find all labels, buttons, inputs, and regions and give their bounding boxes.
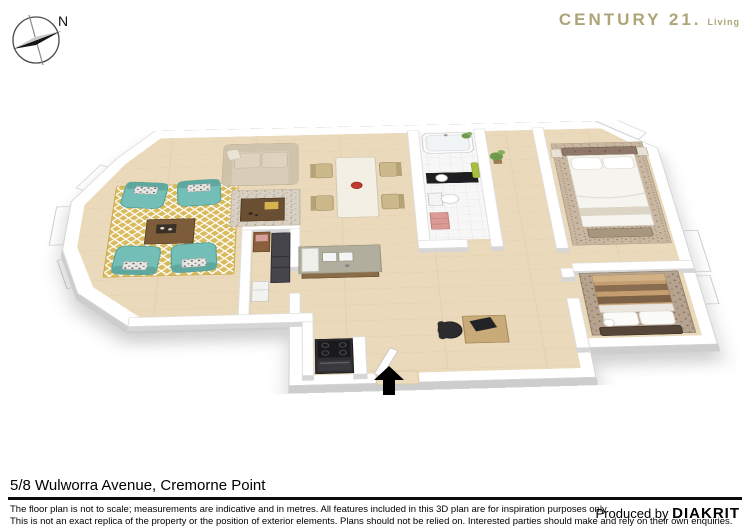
bedroom2-rug xyxy=(579,271,695,335)
interior-walls xyxy=(121,125,723,381)
teal-armchair xyxy=(110,246,161,275)
floor-plan xyxy=(0,119,750,402)
laptop xyxy=(469,317,498,332)
outer-walls xyxy=(36,120,726,393)
window-bays xyxy=(34,119,721,322)
bedroom2-floor xyxy=(574,269,702,339)
teal-armchair xyxy=(177,179,221,207)
striped-duvet xyxy=(592,274,673,307)
office-chair xyxy=(437,321,463,338)
bathroom-floor xyxy=(419,131,490,240)
round-cushion xyxy=(603,319,615,327)
master-bedroom-contents xyxy=(549,142,674,246)
dining-set xyxy=(310,156,405,218)
pillow xyxy=(570,157,603,169)
bed-end-bench xyxy=(588,228,654,238)
floor-plan-stage xyxy=(28,52,718,452)
nightstand xyxy=(636,147,649,155)
pillow xyxy=(638,311,675,325)
teal-armchair xyxy=(171,242,217,273)
furniture xyxy=(88,128,710,380)
yellow-rug xyxy=(103,183,238,277)
red-bowl xyxy=(351,182,362,189)
toilet-tank xyxy=(428,193,443,206)
living-kitchen-floor xyxy=(54,130,581,383)
white-appliance xyxy=(251,281,268,301)
laundry-contents xyxy=(251,231,289,301)
producer-name: DIAKRIT xyxy=(672,505,740,522)
basin xyxy=(435,174,447,181)
nightstand xyxy=(550,149,562,157)
entrance-arrow-icon xyxy=(374,366,404,396)
pink-box xyxy=(256,235,268,242)
double-bed xyxy=(567,154,654,226)
bathroom-plant xyxy=(461,133,471,139)
compass-icon: N xyxy=(6,6,78,70)
cabinet xyxy=(253,232,270,252)
sofa-coffee-table xyxy=(240,198,284,221)
headboard xyxy=(561,146,637,156)
desk xyxy=(462,315,509,343)
black-vanity xyxy=(426,172,479,184)
compass-north-label: N xyxy=(58,13,68,29)
stove xyxy=(315,339,353,374)
pink-towels xyxy=(430,212,450,229)
hall-strip-floor xyxy=(485,130,556,246)
divider xyxy=(8,497,742,500)
produced-by: Produced by DIAKRIT xyxy=(596,505,740,522)
headboard xyxy=(599,325,683,335)
green-towel xyxy=(471,163,480,178)
pillow xyxy=(602,157,635,169)
pillow xyxy=(602,312,639,326)
produced-by-label: Produced by xyxy=(596,506,669,521)
compass-needle xyxy=(13,31,61,49)
master-bedroom-floor xyxy=(543,127,679,263)
coffee-table xyxy=(144,219,195,245)
speckled-rug xyxy=(230,189,300,226)
sink xyxy=(339,252,354,261)
brand-logo: CENTURY 21.Living xyxy=(559,10,740,30)
sink xyxy=(322,253,336,262)
kitchen-island xyxy=(299,245,382,279)
brand-tagline: Living xyxy=(708,17,741,27)
master-rug xyxy=(551,142,671,245)
bathroom-contents xyxy=(421,132,487,229)
toilet xyxy=(441,194,460,204)
brand-name: CENTURY 21. xyxy=(559,10,702,29)
sofa xyxy=(222,143,298,186)
property-address: 5/8 Wulworra Avenue, Cremorne Point xyxy=(10,477,265,494)
hall-plant xyxy=(489,150,507,164)
refrigerator xyxy=(271,233,290,283)
teal-armchair xyxy=(119,182,169,209)
floors xyxy=(54,127,711,382)
desk-with-chair xyxy=(437,315,509,344)
bathtub xyxy=(422,132,475,153)
bedroom2-contents xyxy=(579,271,696,336)
dining-table xyxy=(336,157,379,218)
